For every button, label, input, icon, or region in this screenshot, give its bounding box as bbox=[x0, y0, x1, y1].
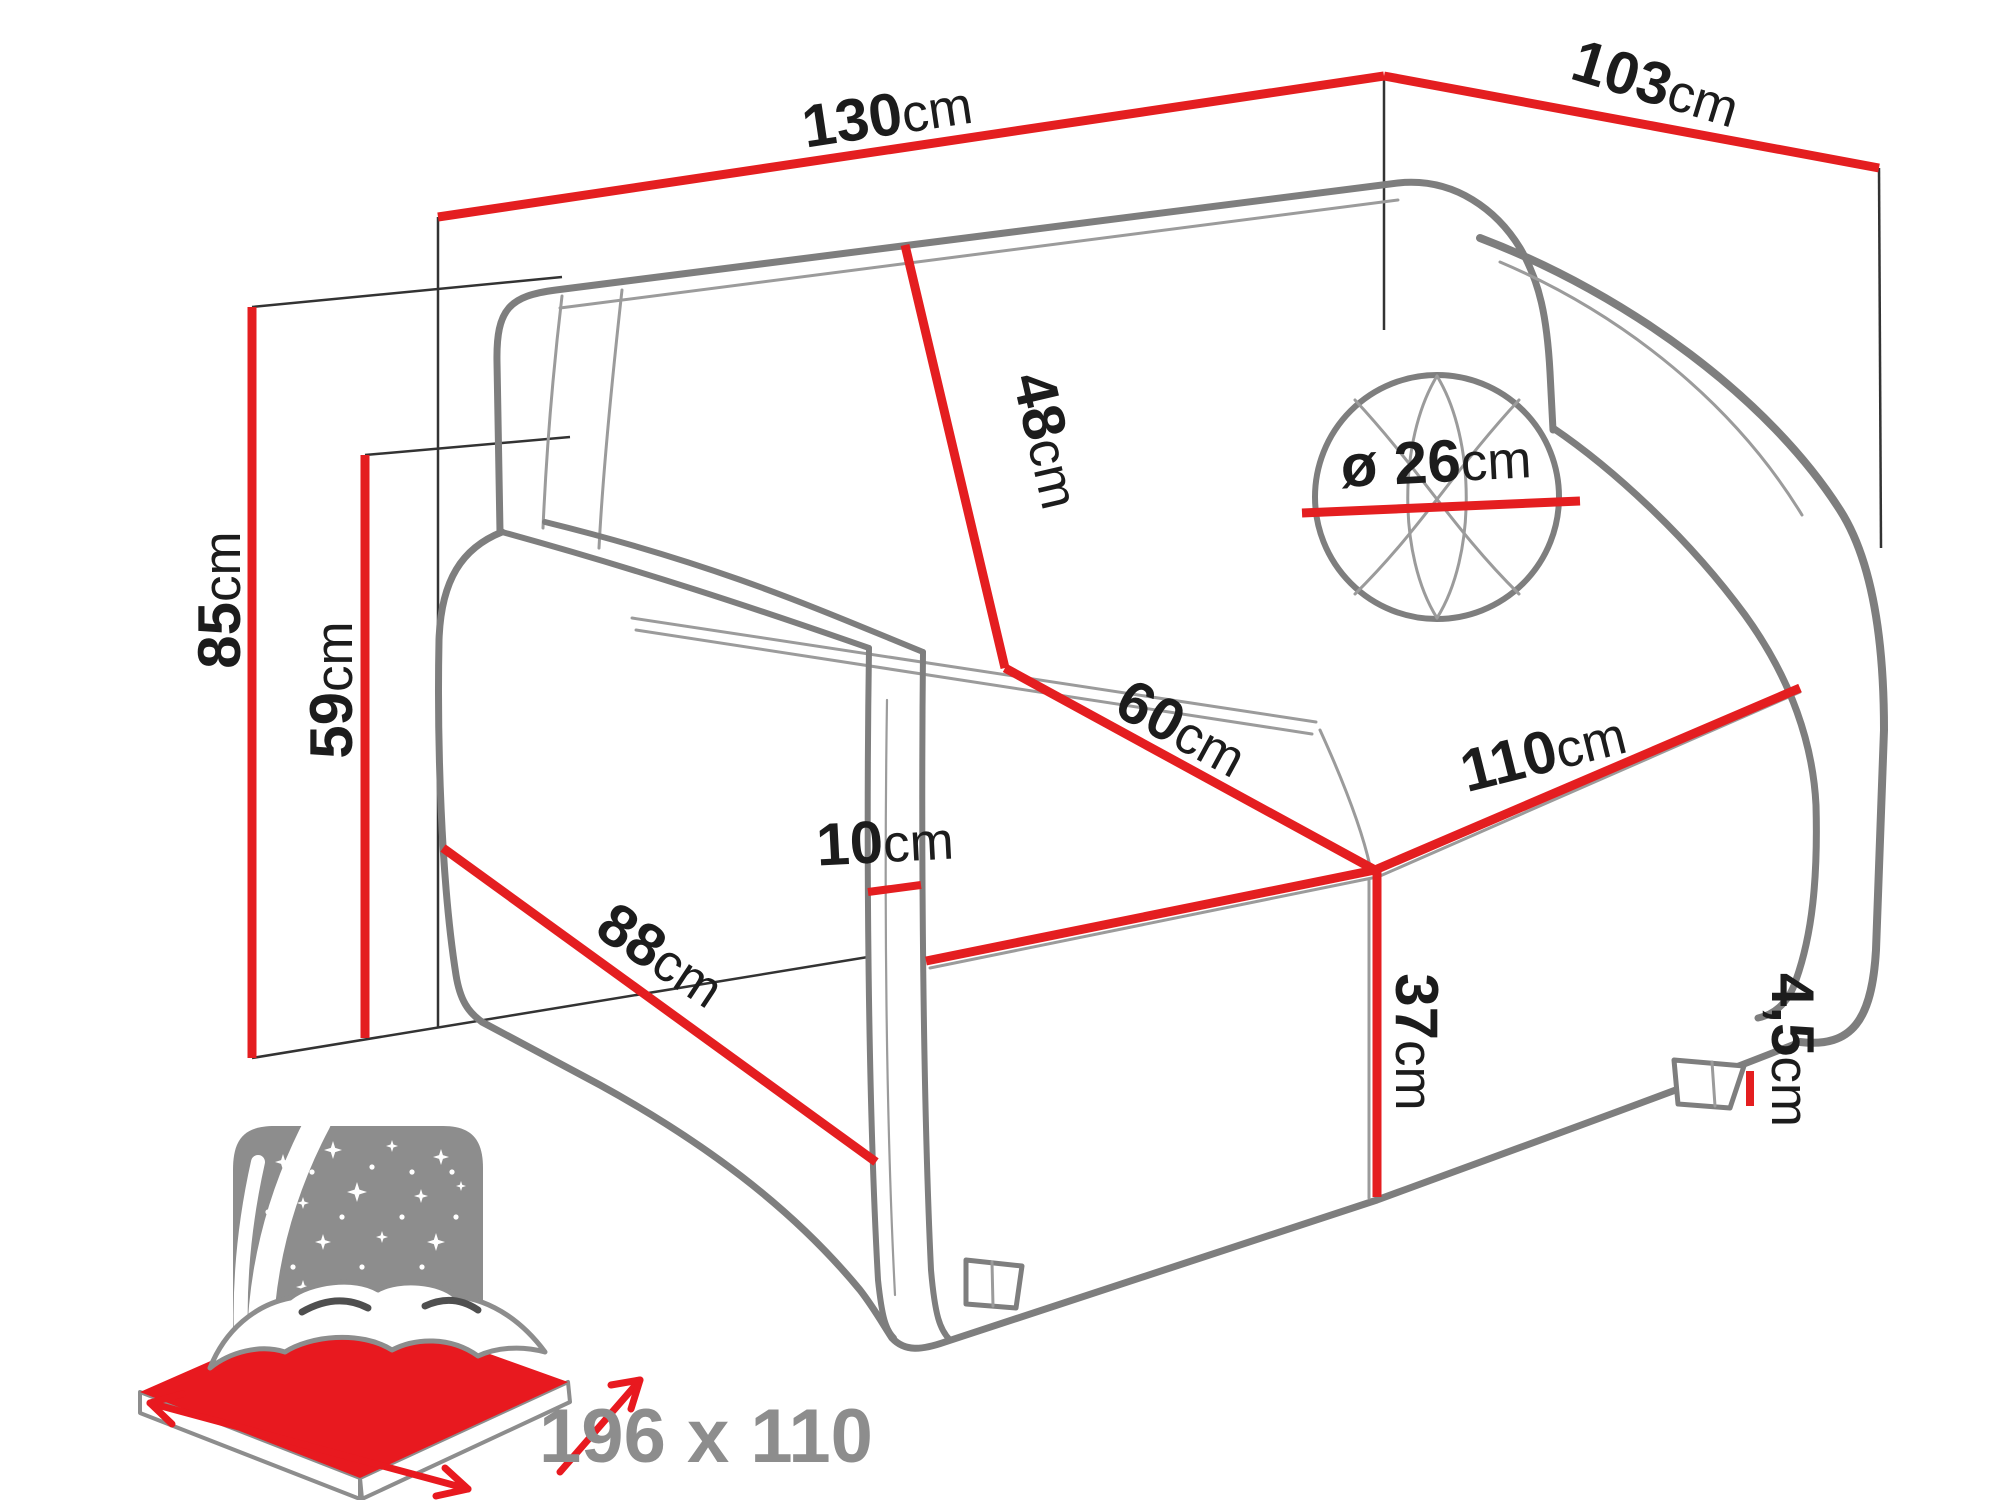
label-height-total: 85cm bbox=[186, 531, 253, 668]
label-seat-depth: 60cm bbox=[1105, 666, 1258, 790]
dimension-labels: 130cm 103cm 85cm 59cm 48cm ø 26cm 60cm 1… bbox=[186, 26, 1826, 1127]
front-right-leg bbox=[1674, 1060, 1744, 1108]
label-backrest-height: 48cm bbox=[1000, 366, 1096, 515]
label-leg-height: 4,5cm bbox=[1759, 973, 1826, 1127]
label-armrest-width: 10cm bbox=[815, 804, 956, 878]
label-height-armrest: 59cm bbox=[298, 621, 365, 758]
sofa-outline bbox=[439, 182, 1884, 1348]
label-seat-width: 110cm bbox=[1454, 699, 1633, 805]
backrest-height-line bbox=[905, 245, 1005, 668]
sleeping-area-label: 196 x 110 bbox=[539, 1394, 873, 1479]
label-width-top: 130cm bbox=[798, 69, 977, 161]
label-cushion-diameter: ø 26cm bbox=[1339, 423, 1533, 500]
front-width-line bbox=[443, 848, 876, 1162]
right-armrest-outline bbox=[1480, 238, 1884, 1043]
seat-front-left-line bbox=[926, 870, 1375, 961]
front-left-leg bbox=[966, 1260, 1022, 1308]
starry-night-bed-icon: 196 x 110 bbox=[140, 1122, 873, 1499]
sofa-dimension-diagram: 196 x 110 130cm 103cm 85cm 59cm 48cm bbox=[0, 0, 2000, 1500]
armrest-width-tick bbox=[868, 885, 921, 892]
label-seat-height: 37cm bbox=[1383, 973, 1450, 1110]
